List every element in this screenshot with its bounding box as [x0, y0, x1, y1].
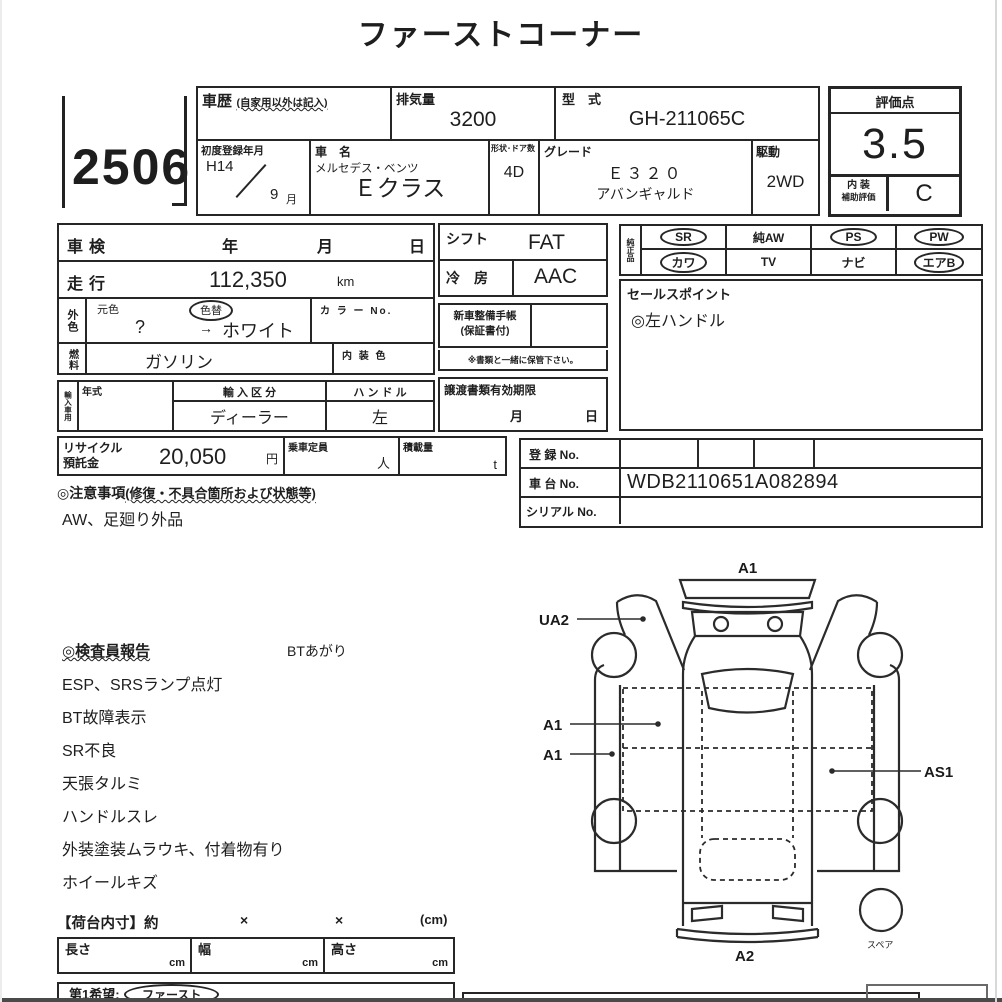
- wheel-front-right: [858, 633, 902, 677]
- cargo-width-cell: 幅 cm: [192, 939, 325, 972]
- cargo-length-cell: 長さ cm: [59, 939, 192, 972]
- fuel-label: 燃料: [59, 344, 87, 375]
- cargo-cm: cm: [302, 957, 318, 969]
- reg-divider-1: [697, 440, 699, 467]
- serial-value: [621, 498, 981, 524]
- inspector-line: 外装塗装ムラウキ、付着物有り: [62, 834, 285, 867]
- handbook-line2: (保証書付): [440, 324, 530, 339]
- model-code-cell: 型 式 GH-211065C: [556, 88, 818, 139]
- door-dashed-rect: [623, 688, 872, 811]
- mileage-label: 走行: [67, 270, 111, 294]
- shift-value: FAT: [528, 231, 565, 255]
- interior-label-cell: 内 装 補助評価: [831, 177, 889, 211]
- inspector-line: ESP、SRSランプ点灯: [62, 669, 285, 702]
- headlamp-left: [714, 617, 728, 631]
- cargo-times-1: ×: [240, 912, 248, 928]
- score-value: 3.5: [831, 114, 959, 177]
- shaken-month: 月: [317, 233, 333, 257]
- reg-divider-3: [813, 440, 815, 467]
- sales-point-label: セールスポイント: [621, 281, 981, 303]
- color-arrow: →: [199, 320, 213, 336]
- history-note: (自家用以外は記入): [236, 97, 327, 109]
- load-label: 積載量: [400, 443, 433, 454]
- diagram-front-label: A1: [738, 560, 757, 577]
- sales-point-value: ◎左ハンドル: [621, 303, 981, 331]
- transfer-label: 譲渡書類有効期限: [440, 379, 606, 398]
- cargo-cm: cm: [169, 957, 185, 969]
- import-handle-label: ハ ン ド ル: [327, 382, 433, 402]
- ext-color-cell: 元色 色替 ? → ホワイト: [87, 299, 312, 342]
- handbook-line1: 新車整備手帳: [440, 309, 530, 324]
- inspector-line: SR不良: [62, 735, 285, 768]
- ac-label: 冷 房: [446, 268, 488, 288]
- right-fender: [810, 595, 899, 680]
- recycle-value: 20,050: [159, 444, 226, 470]
- lot-number: 2506: [72, 138, 191, 196]
- headlamp-right: [768, 617, 782, 631]
- front-bumper: [680, 580, 815, 598]
- shaken-row: 車検 年 月 日: [59, 225, 433, 262]
- cargo-header: 【荷台内寸】約: [57, 916, 159, 932]
- history-label: 車歴: [202, 93, 232, 110]
- model-code-label: 型 式: [562, 89, 812, 108]
- rear-bumper-band: [677, 929, 818, 942]
- left-fender: [595, 595, 684, 680]
- capacity-cell: 乗車定員 人: [285, 438, 400, 474]
- ac-divider: [512, 261, 514, 295]
- cargo-cm: cm: [432, 957, 448, 969]
- equip-aw: 純AW: [727, 226, 812, 248]
- import-block: 輸入車用 年式 輸 入 区 分 ディーラー ハ ン ド ル 左: [57, 380, 435, 432]
- diagram-left-door-label-2: A1: [543, 747, 562, 764]
- load-unit: t: [493, 457, 497, 472]
- fuel-row: 燃料 ガソリン 内 装 色: [59, 344, 433, 375]
- inspector-lines: ESP、SRSランプ点灯 BT故障表示 SR不良 天張タルミ ハンドルスレ 外装…: [62, 669, 285, 900]
- serial-row: シリアル No.: [521, 498, 981, 524]
- registration-block: 登 録 No. 車 台 No. WDB2110651A082894 シリアル N…: [519, 438, 983, 528]
- first-reg-slash: [236, 164, 267, 198]
- interior-color-label: 内 装 色: [342, 351, 388, 362]
- cargo-height-label: 高さ: [325, 942, 357, 957]
- orig-color-label: 元色: [97, 301, 119, 317]
- inspector-side-note: BTあがり: [287, 641, 347, 661]
- chassis-row: 車 台 No. WDB2110651A082894: [521, 469, 981, 498]
- shift-row: シフト FAT: [440, 225, 606, 261]
- interior-label-line1: 内 装: [831, 180, 886, 192]
- import-label: 輸入車用: [59, 382, 79, 430]
- evaluation-box: 評価点 3.5 内 装 補助評価 C: [828, 86, 962, 217]
- first-reg-month-suffix: 月: [286, 191, 297, 207]
- reg-no-value: [621, 440, 981, 467]
- first-reg-cell: 初度登録年月 H14 9 月: [198, 141, 311, 214]
- handbook-label-cell: 新車整備手帳 (保証書付): [440, 305, 532, 346]
- handbook-note: ※書類と一緒に保管下さい。: [438, 350, 608, 371]
- grade-label: グレード: [544, 143, 747, 160]
- equip-pw: PW: [897, 226, 981, 248]
- fuel-cell: ガソリン: [87, 344, 334, 375]
- interior-grade: C: [889, 177, 959, 211]
- inspector-line: 天張タルミ: [62, 768, 285, 801]
- shaken-year: 年: [222, 233, 238, 257]
- equip-ps: PS: [812, 226, 897, 248]
- grade-line2: アバンギャルド: [544, 184, 747, 204]
- import-division-cell: 輸 入 区 分 ディーラー: [174, 382, 327, 430]
- lot-right-foot: [172, 203, 186, 206]
- diagram-right-rear-label: AS1: [924, 764, 953, 781]
- capacity-label: 乗車定員: [285, 443, 328, 454]
- notes-header-paren: (修復・不具合箇所および状態等): [125, 486, 316, 501]
- import-year-cell: 年式: [79, 382, 174, 430]
- recycle-cell: リサイクル 預託金 20,050 円: [59, 438, 285, 474]
- transfer-month: 月: [510, 406, 523, 425]
- shaken-day: 日: [409, 233, 425, 257]
- sales-point-box: セールスポイント ◎左ハンドル: [619, 279, 983, 431]
- doors-value: 4D: [491, 164, 537, 182]
- car-name-cell: 車 名 メルセデス・ベンツ Ｅクラス: [311, 141, 490, 214]
- doors-cell: 形状･ドア数 4D: [490, 141, 540, 214]
- first-reg-month: 9: [270, 186, 278, 203]
- import-year-label: 年式: [79, 387, 102, 398]
- car-damage-diagram: A1 UA2 A1 A1 AS1 A2 スペア: [525, 558, 1002, 968]
- cargo-table: 長さ cm 幅 cm 高さ cm: [57, 937, 455, 974]
- car-maker: メルセデス・ベンツ: [315, 160, 484, 176]
- inspector-line: ハンドルスレ: [62, 801, 285, 834]
- chassis-label: 車 台 No.: [521, 469, 621, 496]
- equip-sr: SR: [642, 226, 727, 248]
- cowl-panel: [692, 612, 803, 636]
- equip-kawa: カワ: [642, 250, 727, 274]
- wheel-rear-left: [592, 799, 636, 843]
- windshield: [702, 669, 793, 713]
- wheel-rear-right: [858, 799, 902, 843]
- cargo-unit: (cm): [420, 912, 447, 927]
- handbook-box: 新車整備手帳 (保証書付): [438, 303, 608, 348]
- body-right-edge: [800, 636, 812, 926]
- import-handle-cell: ハ ン ド ル 左: [327, 382, 433, 430]
- first-reg-era: H14: [206, 158, 234, 175]
- shift-ac-box: シフト FAT 冷 房 AAC: [438, 223, 608, 297]
- fuel-value: ガソリン: [145, 348, 213, 373]
- orig-color-value: ?: [135, 317, 145, 338]
- spare-tire: [860, 889, 902, 931]
- import-division-label: 輸 入 区 分: [174, 382, 325, 402]
- shift-label: シフト: [446, 229, 488, 249]
- color-no-cell: カ ラ ー No.: [312, 299, 433, 342]
- scan-edge-bottom: [0, 998, 1002, 1002]
- mileage-unit: km: [337, 274, 354, 289]
- car-model: Ｅクラス: [315, 176, 484, 201]
- recycle-row: リサイクル 預託金 20,050 円 乗車定員 人 積載量 t: [57, 436, 507, 476]
- inspector-line: ホイールキズ: [62, 867, 285, 900]
- handbook-empty-cell: [532, 305, 606, 346]
- grade-cell: グレード Ｅ３２０ アバンギャルド: [540, 141, 753, 214]
- diagram-rear-label: A2: [735, 948, 754, 965]
- cargo-times-2: ×: [335, 912, 343, 928]
- drive-cell: 駆動 2WD: [753, 141, 818, 214]
- cargo-width-label: 幅: [192, 942, 211, 957]
- equip-tv: TV: [727, 250, 812, 274]
- taillight-right: [773, 906, 803, 921]
- interior-label-line2: 補助評価: [831, 192, 886, 203]
- color-no-label: カ ラ ー No.: [320, 306, 392, 317]
- rear-window-dashed: [700, 839, 795, 880]
- ac-value: AAC: [534, 265, 577, 289]
- load-cell: 積載量 t: [400, 438, 505, 474]
- equipment-label: 純正品: [621, 226, 642, 274]
- taillight-left: [692, 906, 722, 921]
- reg-no-label: 登 録 No.: [521, 440, 621, 467]
- recycle-unit: 円: [266, 450, 278, 467]
- equip-navi: ナビ: [812, 250, 897, 274]
- cargo-height-cell: 高さ cm: [325, 939, 453, 972]
- inspector-line: BT故障表示: [62, 702, 285, 735]
- car-name-label: 車 名: [315, 143, 484, 160]
- diagram-left-door-label-1: A1: [543, 717, 562, 734]
- diagram-spare-label: スペア: [867, 940, 893, 950]
- left-table: 車検 年 月 日 走行 112,350 km 外色 元色 色替 ? → ホワイト…: [57, 223, 435, 375]
- header-grid: 車歴 (自家用以外は記入) 排気量 3200 型 式 GH-211065C 初度…: [196, 86, 820, 216]
- displacement-value: 3200: [396, 108, 550, 132]
- equipment-grid: 純正品 SR 純AW PS PW カワ TV ナビ エアB: [619, 224, 983, 276]
- ac-row: 冷 房 AAC: [440, 261, 606, 295]
- grade-line1: Ｅ３２０: [544, 160, 747, 184]
- inspector-header: ◎検査員報告: [62, 640, 150, 661]
- equip-airbag: エアB: [897, 250, 981, 274]
- import-handle-value: 左: [327, 402, 433, 428]
- scan-edge-left: [0, 0, 2, 1002]
- lot-right-bar: [184, 96, 187, 206]
- scan-edge-right: [995, 0, 997, 1002]
- body-left-edge: [683, 636, 695, 926]
- ext-color-row: 外色 元色 色替 ? → ホワイト カ ラ ー No.: [59, 299, 433, 344]
- wheel-front-left: [592, 633, 636, 677]
- drive-label: 駆動: [756, 143, 815, 160]
- history-cell: 車歴 (自家用以外は記入): [198, 88, 392, 139]
- current-color: ホワイト: [222, 317, 294, 343]
- notes-body: AW、足廻り外品: [62, 506, 183, 530]
- notes-header-left: ◎注意事項: [57, 485, 125, 501]
- auction-sheet: ファーストコーナー 2506 車歴 (自家用以外は記入) 排気量 3200 型 …: [0, 0, 1002, 1002]
- page-title: ファーストコーナー: [0, 10, 1002, 54]
- capacity-unit: 人: [377, 453, 390, 472]
- first-reg-label: 初度登録年月: [201, 143, 306, 158]
- reg-divider-2: [753, 440, 755, 467]
- lot-left-bar: [62, 96, 65, 208]
- displacement-cell: 排気量 3200: [392, 88, 556, 139]
- reg-no-row: 登 録 No.: [521, 440, 981, 469]
- chassis-value: WDB2110651A082894: [621, 469, 981, 496]
- cargo-header-row: 【荷台内寸】約 × × (cm): [57, 912, 457, 934]
- model-code-value: GH-211065C: [562, 108, 812, 131]
- score-label: 評価点: [831, 89, 959, 114]
- diagram-left-fender-label: UA2: [539, 612, 569, 629]
- interior-color-cell: 内 装 色: [334, 344, 433, 375]
- mileage-row: 走行 112,350 km: [59, 262, 433, 299]
- doors-label: 形状･ドア数: [491, 143, 537, 154]
- serial-label: シリアル No.: [521, 498, 621, 524]
- mileage-value: 112,350: [209, 267, 287, 293]
- cargo-length-label: 長さ: [59, 942, 91, 957]
- import-division-value: ディーラー: [174, 402, 325, 428]
- drive-value: 2WD: [756, 172, 815, 192]
- ext-color-label: 外色: [59, 299, 87, 342]
- displacement-label: 排気量: [396, 89, 550, 108]
- transfer-box: 譲渡書類有効期限 月 日: [438, 377, 608, 432]
- transfer-day: 日: [585, 406, 598, 425]
- shaken-label: 車検: [67, 233, 111, 257]
- notes-header: ◎注意事項(修復・不具合箇所および状態等): [57, 483, 316, 503]
